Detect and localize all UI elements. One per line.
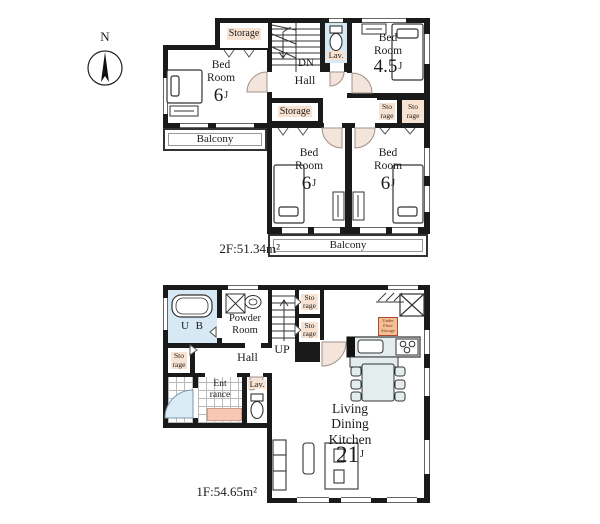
window [282, 227, 308, 234]
window [424, 148, 430, 176]
storage-n1-label: Sto rage [299, 291, 320, 313]
window [387, 497, 417, 503]
compass-north-label: N [96, 29, 114, 45]
entrance-label: Ent rance [198, 378, 242, 402]
bedroom-sw-size-value: 6 [302, 173, 312, 194]
bedroom-nw-size: 6J [186, 85, 256, 107]
storage-nw-label: Storage [220, 26, 268, 42]
window [163, 298, 168, 330]
window [388, 285, 418, 290]
ldk-size-value: 21 [336, 442, 359, 468]
window [329, 18, 343, 23]
window [424, 186, 430, 212]
window [424, 330, 430, 354]
room-ub [168, 290, 217, 343]
door-opening [320, 340, 324, 364]
storage-e2-label: Sto rage [402, 100, 424, 123]
bedroom-ne-size-value: 4.5 [374, 56, 398, 77]
powder-room-label: Powder Room [222, 312, 268, 338]
bedroom-se-label: Bed Room [353, 147, 423, 173]
under-floor-storage-label: Under Floor Storage [378, 317, 398, 336]
storage-e1-tag: Sto rage [379, 103, 396, 120]
entrance-step-mat [207, 408, 242, 421]
bedroom-ne-size: 4.5J [353, 56, 423, 78]
bedroom-ne-label: Bed Room [353, 32, 423, 58]
door-opening [267, 72, 272, 92]
lav-2f-label: Lav. [325, 49, 347, 62]
room-stairs-1f [272, 290, 295, 348]
bedroom-sw-size: 6J [274, 173, 344, 195]
floor-plan: N Storage Bed Room 6J DN Hall Lav. Bed R… [0, 0, 600, 524]
stairs-dn-label: DN [293, 57, 319, 69]
ub-label: U B [172, 319, 214, 334]
room-porch [168, 377, 193, 423]
floor2-area-label: 2F:51.34m² [180, 241, 280, 257]
window [424, 440, 430, 474]
window [163, 78, 168, 114]
window [424, 34, 430, 64]
storage-e1-label: Sto rage [377, 100, 397, 123]
door-opening [205, 373, 237, 377]
window [360, 227, 386, 234]
stairs-up-label: UP [267, 343, 297, 357]
bedroom-sw-label: Bed Room [274, 147, 344, 173]
storage-w-label: Sto rage [168, 349, 190, 372]
ldk-size-unit: J [360, 449, 364, 460]
floor1-area-label: 1F:54.65m² [157, 484, 257, 500]
window [228, 285, 258, 290]
bedroom-sw-size-unit: J [312, 178, 316, 189]
room-hall-2f-corridor [323, 98, 377, 123]
bedroom-nw-size-unit: J [224, 90, 228, 101]
door-opening [250, 373, 263, 377]
bedroom-se-size: 6J [353, 173, 423, 195]
storage-n2-tag: Sto rage [301, 322, 318, 339]
bedroom-se-size-unit: J [391, 178, 395, 189]
room-ldk-west [272, 362, 324, 498]
window [424, 368, 430, 396]
storage-n2-label: Sto rage [299, 319, 320, 341]
bedroom-nw-label: Bed Room [186, 59, 256, 85]
door-opening [324, 123, 342, 128]
bedroom-nw-size-value: 6 [214, 85, 224, 106]
lav-1f-label: Lav. [247, 378, 267, 391]
bedroom-se-size-value: 6 [381, 173, 391, 194]
hall-1f-label: Hall [225, 351, 270, 365]
balcony-west-label: Balcony [163, 128, 267, 150]
storage-w-tag: Sto rage [171, 352, 188, 369]
ldk-size: 21J [318, 443, 382, 467]
storage-nw-tag: Storage [227, 28, 262, 39]
door-opening [355, 123, 375, 128]
compass-icon [88, 51, 122, 85]
window [392, 227, 418, 234]
storage-n1-tag: Sto rage [301, 294, 318, 311]
window [314, 227, 340, 234]
lav-1f-tag: Lav. [248, 380, 267, 390]
balcony-south-label: Balcony [268, 234, 428, 256]
door-opening [245, 343, 261, 348]
hall-2f-label: Hall [283, 74, 327, 88]
door-opening [330, 63, 344, 72]
storage-mid-tag: Storage [278, 106, 313, 117]
ldk-label: Living Dining Kitchen [318, 404, 382, 444]
window [341, 497, 371, 503]
window [297, 497, 329, 503]
bedroom-ne-size-unit: J [398, 61, 402, 72]
window [362, 18, 406, 23]
door-opening [347, 73, 352, 93]
storage-mid-label: Storage [272, 103, 318, 120]
lav-2f-tag: Lav. [327, 51, 346, 61]
